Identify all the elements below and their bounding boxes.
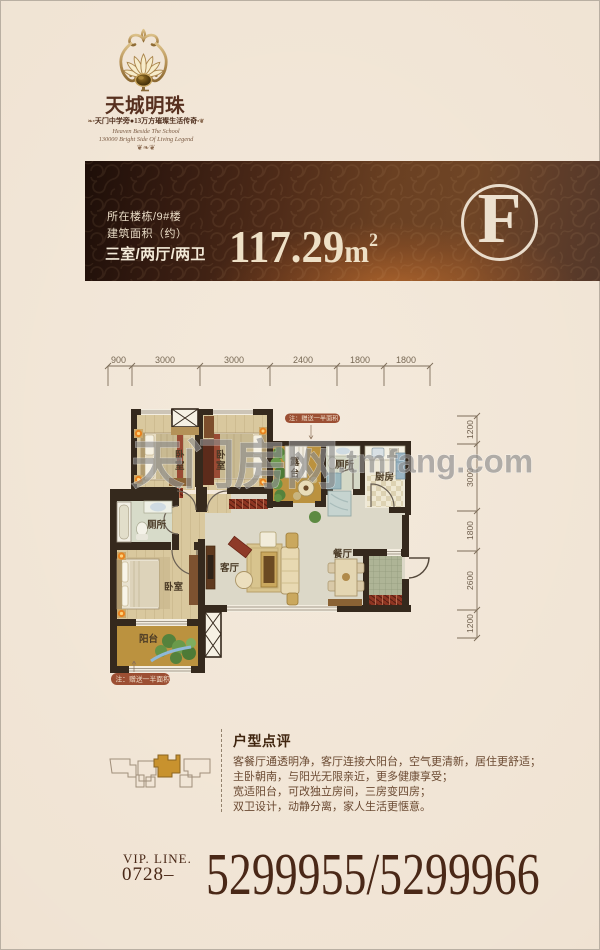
svg-text:1800: 1800 [465, 521, 475, 540]
svg-text:2600: 2600 [465, 571, 475, 590]
svg-text:注：赠送一半面积: 注：赠送一半面积 [116, 675, 171, 684]
svg-text:1800: 1800 [396, 355, 416, 365]
svg-text:1200: 1200 [465, 614, 475, 633]
svg-text:3000: 3000 [224, 355, 244, 365]
svg-text:2400: 2400 [293, 355, 313, 365]
svg-text:卧室: 卧室 [164, 581, 184, 593]
svg-text:3000: 3000 [155, 355, 175, 365]
svg-text:天门房网: 天门房网 [131, 436, 337, 495]
svg-text:900: 900 [111, 355, 126, 365]
svg-text:餐厅: 餐厅 [332, 548, 353, 560]
svg-text:1200: 1200 [465, 420, 475, 439]
svg-text:.tmfang.com: .tmfang.com [337, 443, 533, 480]
svg-text:厕所: 厕所 [147, 519, 167, 531]
svg-text:阳台: 阳台 [139, 633, 159, 645]
svg-text:1800: 1800 [350, 355, 370, 365]
svg-text:注：赠送一半面积: 注：赠送一半面积 [289, 415, 339, 423]
svg-text:客厅: 客厅 [219, 562, 240, 574]
